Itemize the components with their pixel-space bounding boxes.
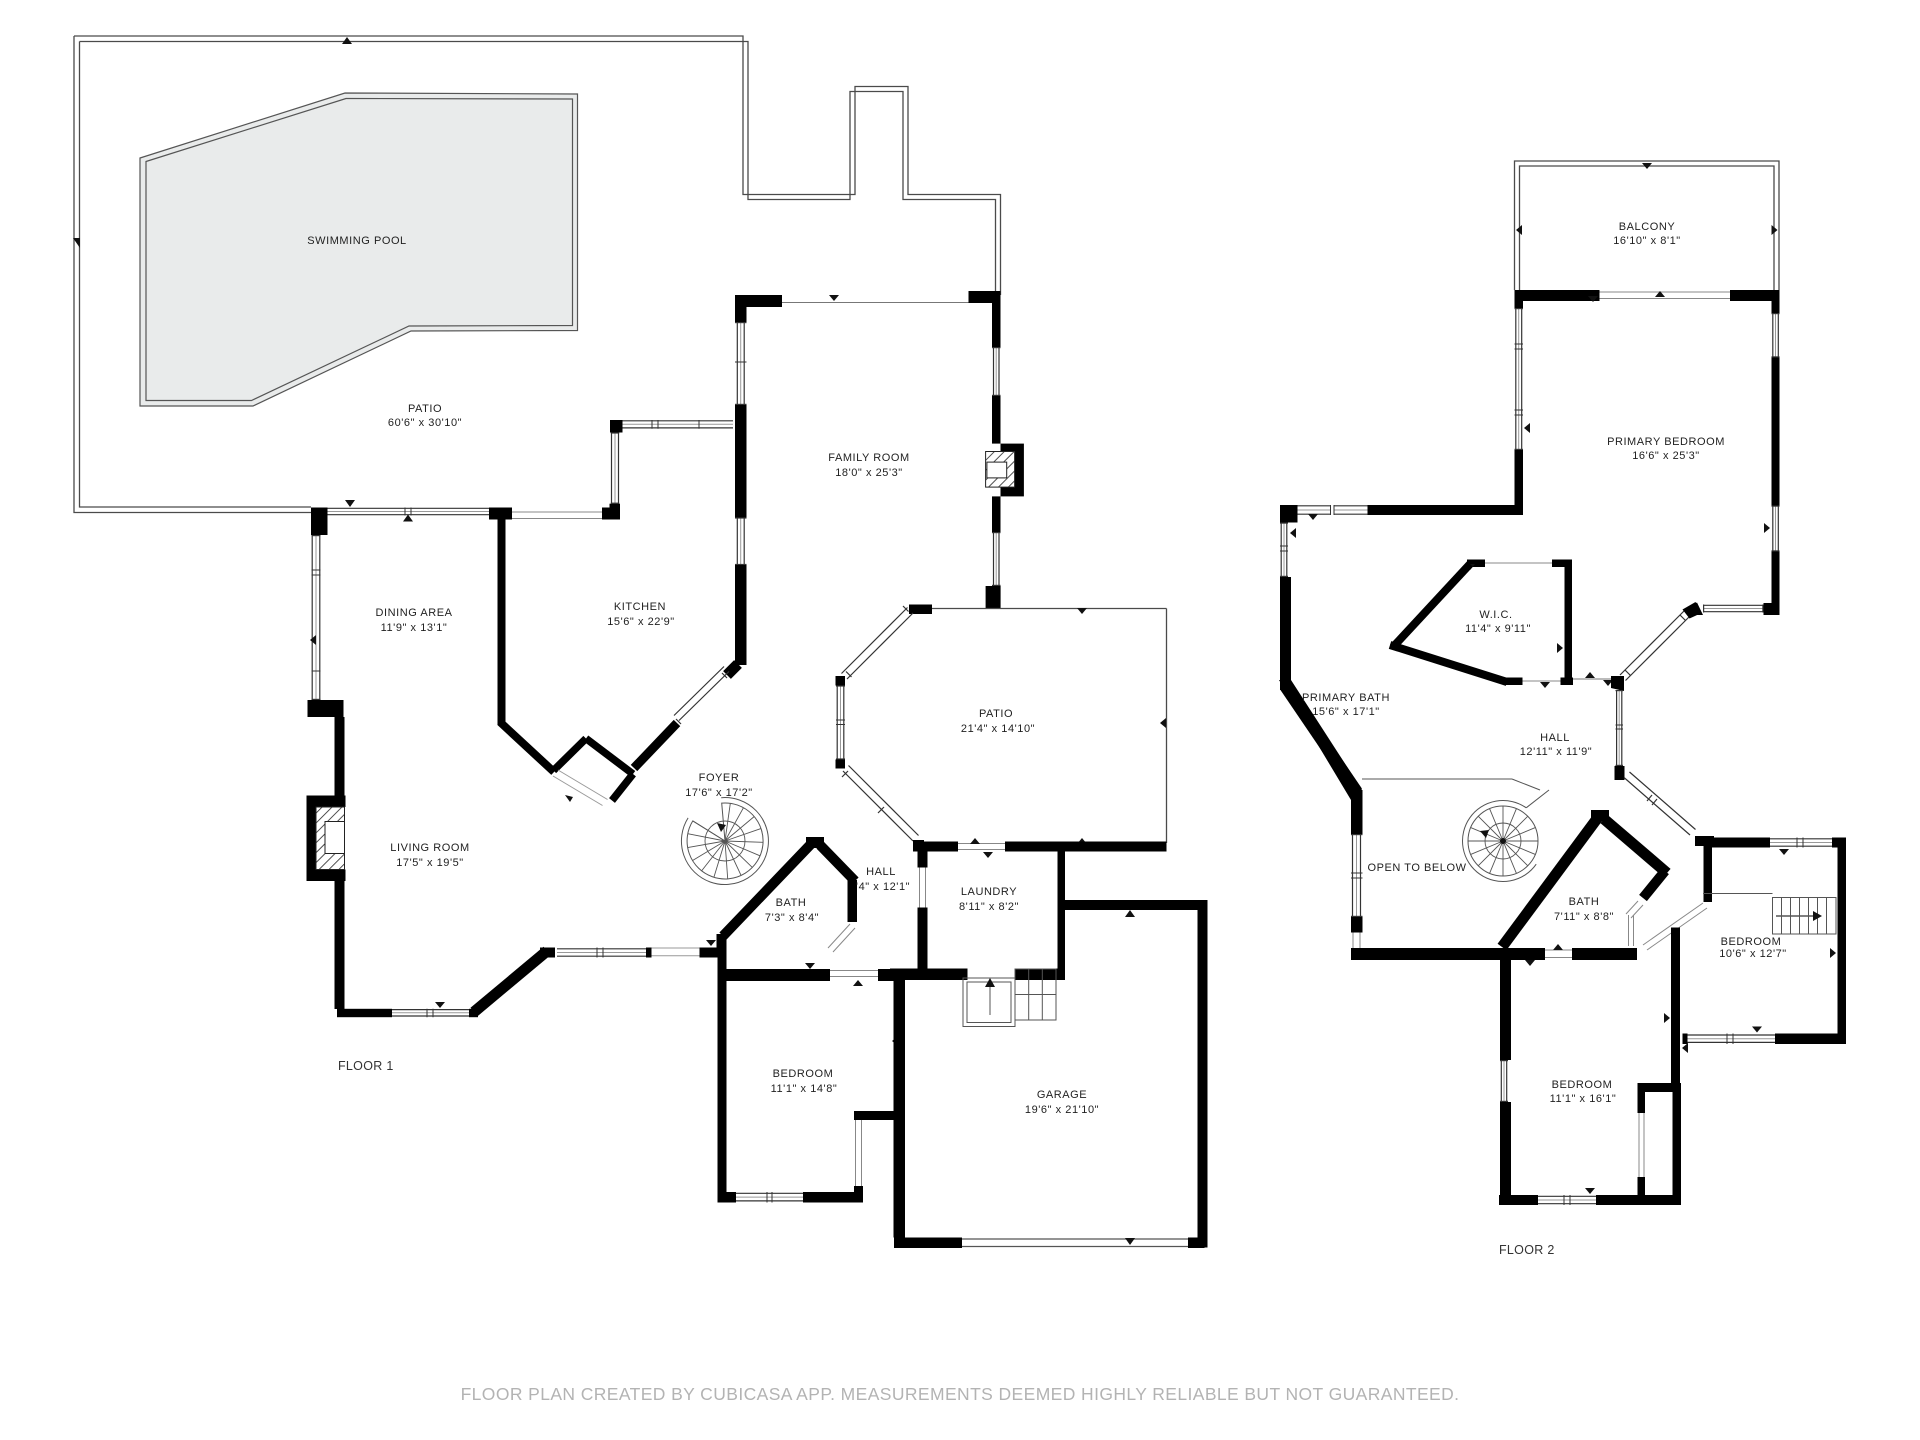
svg-text:11'1" x 16'1": 11'1" x 16'1" bbox=[1550, 1093, 1617, 1105]
svg-text:17'5" x 19'5": 17'5" x 19'5" bbox=[396, 857, 463, 869]
svg-text:LIVING ROOM: LIVING ROOM bbox=[390, 842, 469, 854]
svg-text:HALL: HALL bbox=[1540, 732, 1570, 744]
svg-text:FLOOR 2: FLOOR 2 bbox=[1499, 1243, 1555, 1257]
svg-text:BATH: BATH bbox=[776, 897, 807, 909]
svg-text:FOYER: FOYER bbox=[699, 772, 740, 784]
svg-text:11'1" x 14'8": 11'1" x 14'8" bbox=[771, 1083, 838, 1095]
svg-text:16'6" x 25'3": 16'6" x 25'3" bbox=[1632, 450, 1699, 462]
svg-text:'4" x 12'1": '4" x 12'1" bbox=[856, 881, 910, 893]
svg-text:PATIO: PATIO bbox=[979, 708, 1013, 720]
svg-text:PRIMARY BEDROOM: PRIMARY BEDROOM bbox=[1607, 436, 1725, 448]
svg-text:15'6" x 22'9": 15'6" x 22'9" bbox=[607, 616, 674, 628]
svg-text:19'6" x 21'10": 19'6" x 21'10" bbox=[1025, 1104, 1099, 1116]
svg-text:OPEN TO BELOW: OPEN TO BELOW bbox=[1367, 862, 1466, 874]
svg-text:7'3" x 8'4": 7'3" x 8'4" bbox=[765, 912, 819, 924]
svg-text:FLOOR PLAN CREATED BY CUBICASA: FLOOR PLAN CREATED BY CUBICASA APP. MEAS… bbox=[461, 1384, 1460, 1404]
svg-text:W.I.C.: W.I.C. bbox=[1479, 609, 1512, 621]
svg-text:FAMILY ROOM: FAMILY ROOM bbox=[828, 452, 909, 464]
svg-text:LAUNDRY: LAUNDRY bbox=[961, 886, 1017, 898]
svg-text:8'11" x 8'2": 8'11" x 8'2" bbox=[959, 901, 1019, 913]
svg-text:60'6" x 30'10": 60'6" x 30'10" bbox=[388, 417, 462, 429]
svg-text:11'4" x 9'11": 11'4" x 9'11" bbox=[1465, 623, 1531, 635]
svg-text:BALCONY: BALCONY bbox=[1619, 221, 1676, 233]
svg-text:KITCHEN: KITCHEN bbox=[614, 601, 666, 613]
svg-text:BEDROOM: BEDROOM bbox=[1721, 936, 1782, 948]
svg-text:BEDROOM: BEDROOM bbox=[1552, 1079, 1613, 1091]
svg-text:PRIMARY BATH: PRIMARY BATH bbox=[1302, 692, 1390, 704]
svg-text:21'4" x 14'10": 21'4" x 14'10" bbox=[961, 723, 1035, 735]
svg-text:PATIO: PATIO bbox=[408, 403, 442, 415]
svg-text:FLOOR 1: FLOOR 1 bbox=[338, 1059, 394, 1073]
svg-text:15'6" x 17'1": 15'6" x 17'1" bbox=[1312, 706, 1379, 718]
svg-text:7'11" x 8'8": 7'11" x 8'8" bbox=[1554, 911, 1614, 923]
svg-text:GARAGE: GARAGE bbox=[1037, 1089, 1087, 1101]
svg-text:18'0" x 25'3": 18'0" x 25'3" bbox=[835, 467, 902, 479]
svg-text:SWIMMING POOL: SWIMMING POOL bbox=[307, 235, 406, 247]
svg-text:16'10" x 8'1": 16'10" x 8'1" bbox=[1613, 235, 1680, 247]
svg-text:17'6" x 17'2": 17'6" x 17'2" bbox=[685, 787, 752, 799]
svg-text:DINING AREA: DINING AREA bbox=[376, 607, 453, 619]
svg-text:BATH: BATH bbox=[1569, 896, 1600, 908]
svg-text:HALL: HALL bbox=[866, 866, 896, 878]
svg-text:BEDROOM: BEDROOM bbox=[773, 1068, 834, 1080]
svg-text:12'11" x 11'9": 12'11" x 11'9" bbox=[1520, 746, 1593, 758]
svg-text:11'9" x 13'1": 11'9" x 13'1" bbox=[381, 622, 448, 634]
svg-text:10'6" x 12'7": 10'6" x 12'7" bbox=[1719, 948, 1786, 960]
